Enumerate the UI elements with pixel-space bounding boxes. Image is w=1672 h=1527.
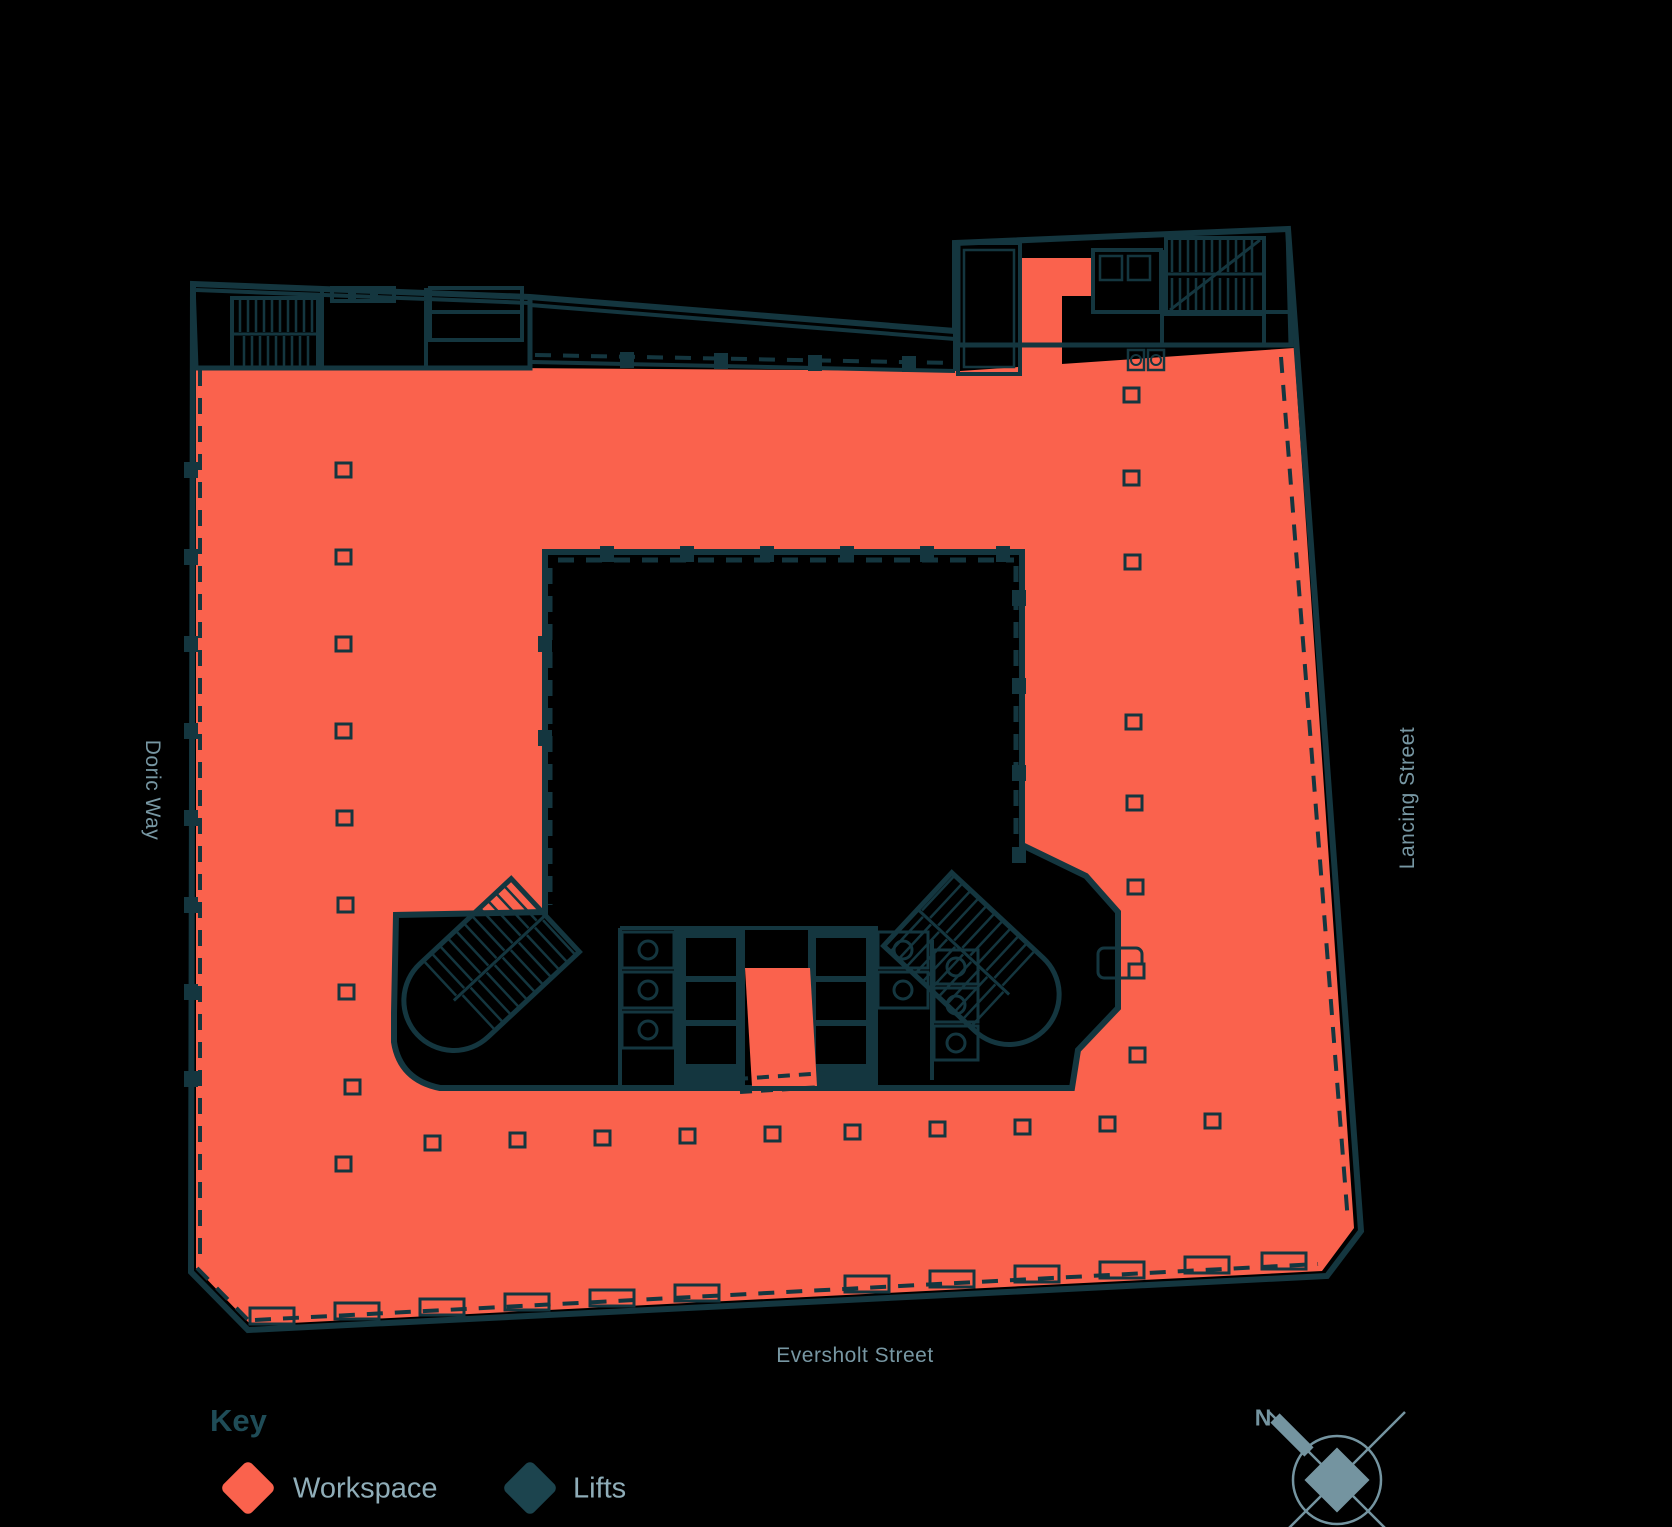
workspace-wedge xyxy=(1022,258,1062,372)
stair-nw-treads xyxy=(240,300,312,332)
lift-car xyxy=(686,938,736,976)
street-label-doric-way: Doric Way xyxy=(140,740,164,841)
street-label-eversholt-street: Eversholt Street xyxy=(776,1344,933,1368)
lift-car xyxy=(816,982,866,1020)
compass-north-pointer xyxy=(1275,1418,1309,1452)
lift-bank-left xyxy=(678,928,745,1085)
room-ne-west xyxy=(958,243,1020,374)
floor-plan: Doric Way Lancing Street Eversholt Stree… xyxy=(0,0,1672,1527)
legend-label-lifts: Lifts xyxy=(573,1473,626,1506)
workspace-wedge-notch xyxy=(1062,258,1092,296)
lift-car xyxy=(686,982,736,1020)
compass-north-label: N xyxy=(1255,1405,1272,1432)
lift-car xyxy=(816,1026,866,1064)
floor-plan-drawing xyxy=(0,0,1672,1527)
corner-block-northwest xyxy=(193,284,530,368)
legend-heading: Key xyxy=(210,1403,267,1439)
compass xyxy=(1269,1412,1405,1527)
lift-car xyxy=(686,1026,736,1064)
lift-bank-right xyxy=(808,928,876,1085)
lift-car xyxy=(816,938,866,976)
lift-lobby-corridor xyxy=(745,968,817,1086)
legend-label-workspace: Workspace xyxy=(293,1473,438,1506)
street-label-lancing-street: Lancing Street xyxy=(1396,727,1420,869)
